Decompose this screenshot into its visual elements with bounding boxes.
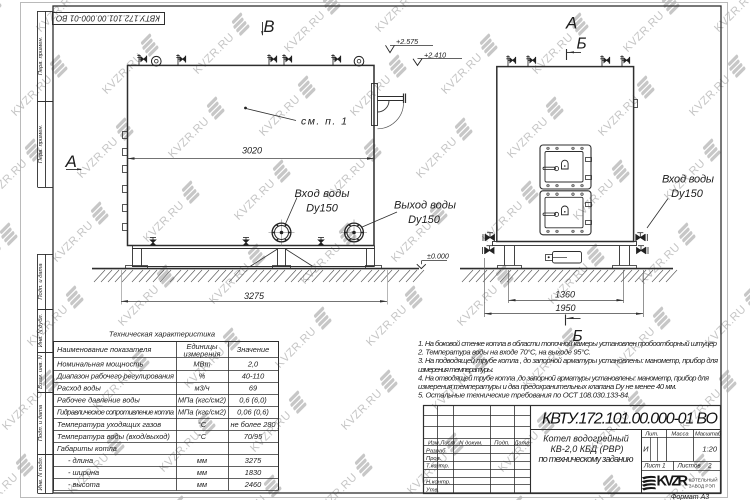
svg-text:МПа (кгс/см2): МПа (кгс/см2) bbox=[178, 396, 227, 405]
svg-text:40-110: 40-110 bbox=[242, 372, 265, 381]
svg-text:Листов: Листов bbox=[677, 463, 702, 470]
svg-text:В: В bbox=[264, 18, 275, 36]
svg-text:Утв.: Утв. bbox=[425, 487, 439, 493]
svg-text:КВТУ.172.101.00.000-01 ВО: КВТУ.172.101.00.000-01 ВО bbox=[56, 14, 160, 23]
svg-text:±0.000: ±0.000 bbox=[427, 251, 449, 260]
svg-text:5. Остальные технические треб: 5. Остальные технические требования по О… bbox=[418, 391, 630, 400]
svg-text:%: % bbox=[199, 372, 206, 381]
svg-text:1830: 1830 bbox=[245, 468, 262, 477]
svg-text:И: И bbox=[643, 444, 649, 453]
svg-text:Взам. инв. N: Взам. инв. N bbox=[38, 354, 44, 389]
svg-text:Б: Б bbox=[577, 36, 587, 53]
svg-text:Масштаб: Масштаб bbox=[695, 432, 722, 438]
svg-text:2,0: 2,0 bbox=[247, 359, 259, 368]
svg-text:KVZR: KVZR bbox=[657, 474, 689, 490]
svg-text:0,06 (0,6): 0,06 (0,6) bbox=[237, 408, 269, 417]
svg-text:МВт: МВт bbox=[193, 359, 210, 368]
svg-text:Дата: Дата bbox=[513, 440, 530, 446]
svg-text:КОТЕЛЬНЫЙ: КОТЕЛЬНЫЙ bbox=[689, 476, 718, 483]
svg-text:Подп. и дата: Подп. и дата bbox=[38, 404, 44, 441]
svg-text:°С: °С bbox=[198, 432, 207, 441]
svg-text:Расход воды: Расход воды bbox=[57, 384, 101, 393]
svg-text:Температура уходящих газов: Температура уходящих газов bbox=[57, 420, 161, 429]
svg-text:не более 280: не более 280 bbox=[230, 420, 276, 429]
svg-text:Вход воды: Вход воды bbox=[295, 188, 350, 200]
svg-text:Температура воды (вход/выход): Температура воды (вход/выход) bbox=[57, 432, 170, 441]
svg-text:Инв. N дубл.: Инв. N дубл. bbox=[38, 314, 44, 348]
svg-text:Масса: Масса bbox=[671, 432, 689, 438]
svg-text:А: А bbox=[65, 152, 77, 171]
svg-text:ЗАВОД РЭП: ЗАВОД РЭП bbox=[689, 484, 715, 489]
svg-text:Н.контр.: Н.контр. bbox=[426, 480, 451, 486]
svg-text:А: А bbox=[565, 14, 577, 33]
svg-text:Пров.: Пров. bbox=[426, 456, 441, 462]
svg-text:0,6 (6,0): 0,6 (6,0) bbox=[239, 396, 267, 405]
svg-text:2: 2 bbox=[707, 463, 712, 470]
svg-text:1950: 1950 bbox=[555, 303, 575, 313]
svg-text:Изм.Лист: Изм.Лист bbox=[428, 440, 455, 446]
svg-text:Рабочее давление воды: Рабочее давление воды bbox=[57, 396, 140, 405]
svg-text:по техническому заданию: по техническому заданию bbox=[539, 454, 634, 464]
svg-text:1360: 1360 bbox=[555, 290, 575, 300]
svg-text:Выход воды: Выход воды bbox=[394, 200, 456, 212]
svg-text:1: 1 bbox=[662, 463, 666, 470]
svg-text:N докум.: N докум. bbox=[459, 440, 482, 446]
svg-text:Подп.: Подп. bbox=[494, 440, 509, 446]
svg-text:измерения: измерения bbox=[184, 350, 221, 359]
svg-text:КВТУ.172.101.00.000-01 ВО: КВТУ.172.101.00.000-01 ВО bbox=[542, 411, 718, 428]
svg-text:3020: 3020 bbox=[242, 146, 262, 156]
svg-text:Вход воды: Вход воды bbox=[662, 174, 714, 186]
svg-text:Диапазон рабочего регулировани: Диапазон рабочего регулирования bbox=[56, 372, 174, 381]
svg-text:3275: 3275 bbox=[244, 291, 265, 301]
svg-text:+2.575: +2.575 bbox=[396, 37, 419, 46]
svg-text:2460: 2460 bbox=[244, 480, 262, 489]
svg-text:69: 69 bbox=[249, 384, 257, 393]
svg-text:Dy150: Dy150 bbox=[306, 203, 339, 215]
svg-text:Котел водогрейный: Котел водогрейный bbox=[543, 434, 629, 444]
svg-text:Значение: Значение bbox=[237, 345, 269, 354]
svg-text:мм: мм bbox=[197, 480, 207, 489]
svg-text:Лист: Лист bbox=[643, 463, 661, 470]
svg-text:- высота: - высота bbox=[68, 480, 100, 489]
svg-text:3275: 3275 bbox=[245, 456, 262, 465]
svg-text:Подп. и дата: Подп. и дата bbox=[38, 263, 44, 300]
svg-text:Перв. примен.: Перв. примен. bbox=[38, 37, 44, 76]
svg-text:м3/ч: м3/ч bbox=[194, 384, 209, 393]
svg-text:МПа (кгс/см2): МПа (кгс/см2) bbox=[178, 408, 227, 417]
svg-text:1:20: 1:20 bbox=[702, 444, 717, 453]
svg-text:Инв. N подл.: Инв. N подл. bbox=[38, 457, 44, 491]
svg-text:70/95: 70/95 bbox=[244, 432, 263, 441]
svg-text:мм: мм bbox=[197, 456, 207, 465]
svg-text:Гидравлическое сопротивление к: Гидравлическое сопротивление котла bbox=[57, 408, 174, 417]
svg-text:Перв. примен.: Перв. примен. bbox=[38, 125, 44, 164]
svg-text:Техническая характеристика: Техническая характеристика bbox=[109, 330, 215, 339]
svg-text:- ширина: - ширина bbox=[68, 468, 99, 477]
svg-text:Габариты котла: Габариты котла bbox=[57, 444, 117, 453]
svg-text:Номинальная мощность: Номинальная мощность bbox=[57, 359, 143, 368]
svg-text:Наименование показателя: Наименование показателя bbox=[57, 345, 151, 354]
svg-text:Dy150: Dy150 bbox=[408, 214, 441, 226]
svg-text:Разраб.: Разраб. bbox=[426, 448, 447, 454]
svg-text:Т.контр.: Т.контр. bbox=[426, 464, 449, 470]
svg-text:°С: °С bbox=[198, 420, 207, 429]
svg-text:- длина: - длина bbox=[68, 456, 93, 465]
svg-text:Формат А3: Формат А3 bbox=[671, 494, 709, 500]
svg-text:Лит.: Лит. bbox=[644, 432, 659, 438]
svg-text:мм: мм bbox=[197, 468, 207, 477]
svg-text:Dy150: Dy150 bbox=[671, 188, 704, 200]
svg-text:КВ-2,0 КБД (РВР): КВ-2,0 КБД (РВР) bbox=[550, 444, 623, 454]
